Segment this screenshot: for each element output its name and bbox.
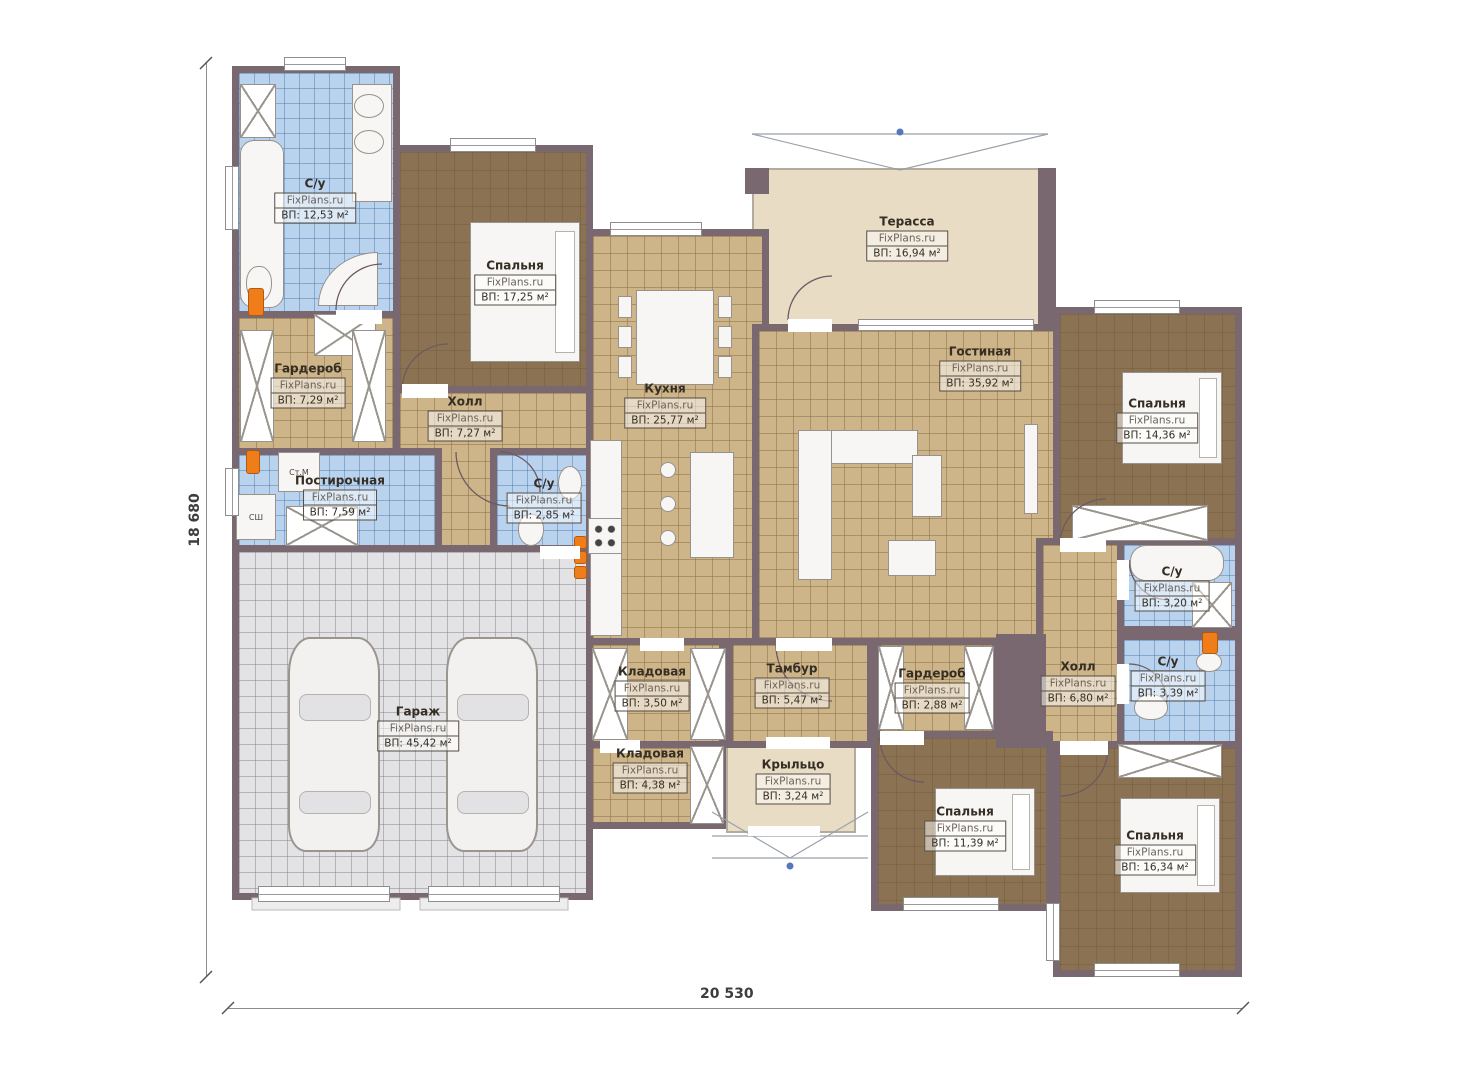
- room-area: ВП: 3,39 м²: [1132, 687, 1205, 701]
- room-info-box: FixPlans.ruВП: 11,39 м²: [924, 821, 1006, 852]
- door-opening: [748, 826, 820, 836]
- room-area: ВП: 7,29 м²: [272, 394, 345, 408]
- room-label-laundry: Постирочная FixPlans.ruВП: 7,59 м²: [295, 474, 385, 521]
- fixplans-watermark: FixPlans.ru: [272, 379, 345, 394]
- room-area: ВП: 3,50 м²: [616, 697, 689, 711]
- window: [1046, 903, 1060, 961]
- room-area: ВП: 16,94 м²: [867, 247, 947, 261]
- room-area: ВП: 11,39 м²: [925, 837, 1005, 851]
- room-area: ВП: 14,36 м²: [1117, 429, 1197, 443]
- room-info-box: FixPlans.ruВП: 7,29 м²: [271, 378, 346, 409]
- awning-node: [897, 129, 904, 136]
- room-label-pantry-top: Кладовая FixPlans.ruВП: 3,50 м²: [615, 665, 690, 712]
- room-label-bathroom-right: С/у FixPlans.ruВП: 3,20 м²: [1135, 565, 1210, 612]
- room-area: ВП: 16,34 м²: [1115, 861, 1195, 875]
- window: [903, 897, 999, 911]
- room-area: ВП: 7,27 м²: [429, 427, 502, 441]
- door-opening: [766, 737, 830, 749]
- room-label-bedroom-right: Спальня FixPlans.ruВП: 14,36 м²: [1116, 397, 1198, 444]
- room-info-box: FixPlans.ruВП: 4,38 м²: [613, 763, 688, 794]
- fixplans-watermark: FixPlans.ru: [475, 276, 555, 291]
- fixplans-watermark: FixPlans.ru: [275, 194, 355, 209]
- room-name: Спальня: [1116, 397, 1198, 411]
- room-label-bedroom-bottom-right: Спальня FixPlans.ruВП: 16,34 м²: [1114, 829, 1196, 876]
- fixplans-watermark: FixPlans.ru: [1136, 582, 1209, 597]
- room-label-porch: Крыльцо FixPlans.ruВП: 3,24 м²: [756, 758, 831, 805]
- fixplans-watermark: FixPlans.ru: [756, 679, 829, 694]
- room-area: ВП: 17,25 м²: [475, 291, 555, 305]
- window: [225, 468, 239, 516]
- fixplans-watermark: FixPlans.ru: [1132, 672, 1205, 687]
- room-name: Тамбур: [755, 662, 830, 676]
- fixplans-watermark: FixPlans.ru: [757, 775, 830, 790]
- room-area: ВП: 7,59 м²: [304, 506, 377, 520]
- door-opening: [336, 310, 382, 324]
- window: [858, 319, 1034, 331]
- room-name: Спальня: [1114, 829, 1196, 843]
- room-name: Терасса: [866, 215, 948, 229]
- room-info-box: FixPlans.ruВП: 6,80 м²: [1041, 676, 1116, 707]
- room-label-bathroom-small: С/у FixPlans.ruВП: 2,85 м²: [507, 477, 582, 524]
- room-info-box: FixPlans.ruВП: 16,34 м²: [1114, 845, 1196, 876]
- room-name: Гардероб: [271, 362, 346, 376]
- room-area: ВП: 4,38 м²: [614, 779, 687, 793]
- room-label-bathroom-master: С/у FixPlans.ruВП: 12,53 м²: [274, 177, 356, 224]
- room-info-box: FixPlans.ruВП: 3,20 м²: [1135, 581, 1210, 612]
- room-info-box: FixPlans.ruВП: 5,47 м²: [755, 678, 830, 709]
- garage-door: [428, 886, 560, 902]
- linework-layer: [0, 0, 1474, 1080]
- room-area: ВП: 2,85 м²: [508, 509, 581, 523]
- room-name: С/у: [1135, 565, 1210, 579]
- door-opening: [1117, 560, 1129, 600]
- room-name: Кладовая: [613, 747, 688, 761]
- garage-door: [258, 886, 390, 902]
- room-info-box: FixPlans.ruВП: 12,53 м²: [274, 193, 356, 224]
- window: [1094, 963, 1180, 977]
- fixplans-watermark: FixPlans.ru: [378, 722, 458, 737]
- room-info-box: FixPlans.ruВП: 16,94 м²: [866, 231, 948, 262]
- room-info-box: FixPlans.ruВП: 7,27 м²: [428, 411, 503, 442]
- door-opening: [788, 319, 832, 332]
- room-label-bedroom-bottom-middle: Спальня FixPlans.ruВП: 11,39 м²: [924, 805, 1006, 852]
- door-opening: [1060, 741, 1108, 755]
- room-name: Гостиная: [939, 345, 1021, 359]
- room-label-kitchen: Кухня FixPlans.ruВП: 25,77 м²: [624, 382, 706, 429]
- room-info-box: FixPlans.ruВП: 2,85 м²: [507, 493, 582, 524]
- room-area: ВП: 3,20 м²: [1136, 597, 1209, 611]
- room-name: Холл: [1041, 660, 1116, 674]
- fixplans-watermark: FixPlans.ru: [1117, 414, 1197, 429]
- room-name: Кладовая: [615, 665, 690, 679]
- floor-plan: Ст.М СШ: [0, 0, 1474, 1080]
- room-name: Гардероб: [895, 667, 970, 681]
- fixplans-watermark: FixPlans.ru: [429, 412, 502, 427]
- room-area: ВП: 35,92 м²: [940, 377, 1020, 391]
- fixplans-watermark: FixPlans.ru: [940, 362, 1020, 377]
- room-info-box: FixPlans.ruВП: 3,24 м²: [756, 774, 831, 805]
- room-name: Постирочная: [295, 474, 385, 488]
- room-info-box: FixPlans.ruВП: 17,25 м²: [474, 275, 556, 306]
- window: [1094, 300, 1180, 314]
- fixplans-watermark: FixPlans.ru: [304, 491, 377, 506]
- fixplans-watermark: FixPlans.ru: [625, 399, 705, 414]
- room-info-box: FixPlans.ruВП: 25,77 м²: [624, 398, 706, 429]
- room-name: С/у: [1131, 655, 1206, 669]
- room-area: ВП: 45,42 м²: [378, 737, 458, 751]
- porch-node: [787, 863, 794, 870]
- room-info-box: FixPlans.ruВП: 45,42 м²: [377, 721, 459, 752]
- room-info-box: FixPlans.ruВП: 7,59 м²: [303, 490, 378, 521]
- room-label-hall-left: Холл FixPlans.ruВП: 7,27 м²: [428, 395, 503, 442]
- window: [284, 57, 346, 71]
- room-info-box: FixPlans.ruВП: 3,50 м²: [615, 681, 690, 712]
- fixplans-watermark: FixPlans.ru: [896, 684, 969, 699]
- room-label-hall-right: Холл FixPlans.ruВП: 6,80 м²: [1041, 660, 1116, 707]
- room-name: Гараж: [377, 705, 459, 719]
- room-info-box: FixPlans.ruВП: 14,36 м²: [1116, 413, 1198, 444]
- room-area: ВП: 6,80 м²: [1042, 692, 1115, 706]
- room-area: ВП: 25,77 м²: [625, 414, 705, 428]
- room-name: Холл: [428, 395, 503, 409]
- window: [610, 222, 702, 236]
- room-area: ВП: 3,24 м²: [757, 790, 830, 804]
- door-opening: [640, 638, 684, 651]
- window: [225, 166, 239, 230]
- room-label-pantry-bottom: Кладовая FixPlans.ruВП: 4,38 м²: [613, 747, 688, 794]
- room-label-bedroom-master: Спальня FixPlans.ruВП: 17,25 м²: [474, 259, 556, 306]
- room-name: С/у: [507, 477, 582, 491]
- fixplans-watermark: FixPlans.ru: [1115, 846, 1195, 861]
- fixplans-watermark: FixPlans.ru: [1042, 677, 1115, 692]
- room-name: С/у: [274, 177, 356, 191]
- window: [450, 138, 536, 152]
- fixplans-watermark: FixPlans.ru: [508, 494, 581, 509]
- room-info-box: FixPlans.ruВП: 3,39 м²: [1131, 671, 1206, 702]
- door-opening: [880, 731, 924, 745]
- room-area: ВП: 2,88 м²: [896, 699, 969, 713]
- room-name: Спальня: [474, 259, 556, 273]
- room-info-box: FixPlans.ruВП: 35,92 м²: [939, 361, 1021, 392]
- fixplans-watermark: FixPlans.ru: [614, 764, 687, 779]
- room-label-wardrobe-bottom: Гардероб FixPlans.ruВП: 2,88 м²: [895, 667, 970, 714]
- room-label-garage: Гараж FixPlans.ruВП: 45,42 м²: [377, 705, 459, 752]
- room-area: ВП: 12,53 м²: [275, 209, 355, 223]
- room-label-terrace: Терасса FixPlans.ruВП: 16,94 м²: [866, 215, 948, 262]
- door-opening: [540, 546, 580, 559]
- room-name: Крыльцо: [756, 758, 831, 772]
- fixplans-watermark: FixPlans.ru: [925, 822, 1005, 837]
- door-opening: [1060, 538, 1106, 552]
- door-opening: [776, 638, 832, 651]
- room-area: ВП: 5,47 м²: [756, 694, 829, 708]
- fixplans-watermark: FixPlans.ru: [867, 232, 947, 247]
- fixplans-watermark: FixPlans.ru: [616, 682, 689, 697]
- room-name: Кухня: [624, 382, 706, 396]
- room-label-wardrobe-left: Гардероб FixPlans.ruВП: 7,29 м²: [271, 362, 346, 409]
- room-label-living: Гостиная FixPlans.ruВП: 35,92 м²: [939, 345, 1021, 392]
- door-opening: [1117, 664, 1129, 704]
- room-label-tambour: Тамбур FixPlans.ruВП: 5,47 м²: [755, 662, 830, 709]
- room-label-bathroom-right-small: С/у FixPlans.ruВП: 3,39 м²: [1131, 655, 1206, 702]
- room-name: Спальня: [924, 805, 1006, 819]
- room-info-box: FixPlans.ruВП: 2,88 м²: [895, 683, 970, 714]
